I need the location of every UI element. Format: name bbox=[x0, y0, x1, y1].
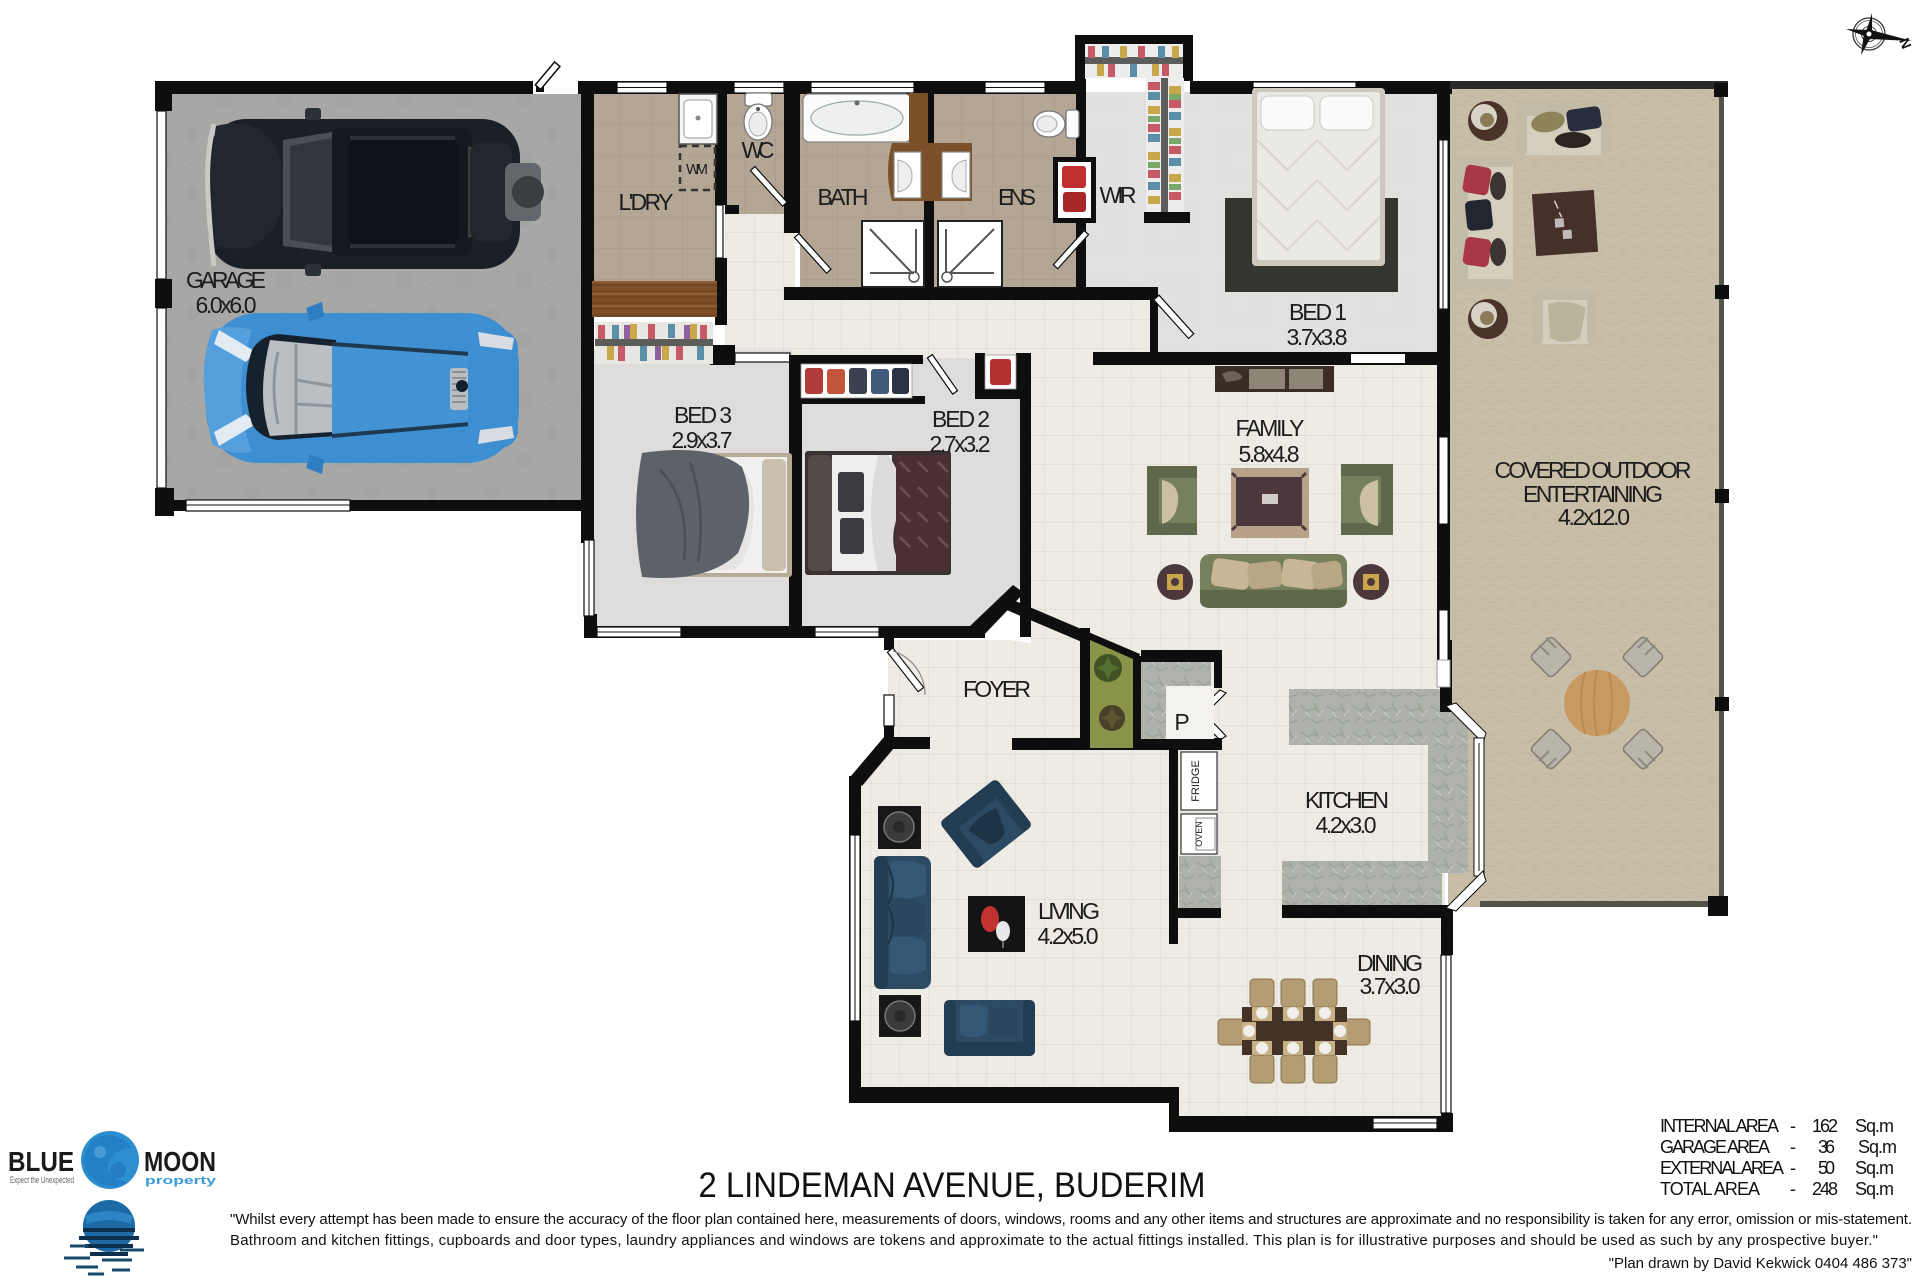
svg-text:Sq.m: Sq.m bbox=[1855, 1158, 1894, 1178]
svg-text:4.2x12.0: 4.2x12.0 bbox=[1558, 504, 1630, 530]
svg-text:36: 36 bbox=[1818, 1137, 1835, 1157]
svg-text:EXTERNAL AREA: EXTERNAL AREA bbox=[1660, 1158, 1784, 1178]
svg-text:MOON: MOON bbox=[144, 1146, 216, 1177]
svg-text:TOTAL AREA: TOTAL AREA bbox=[1660, 1179, 1760, 1199]
svg-text:-: - bbox=[1790, 1179, 1796, 1199]
svg-text:Bathroom and kitchen fittings,: Bathroom and kitchen fittings, cupboards… bbox=[230, 1232, 1878, 1249]
svg-text:BATH: BATH bbox=[818, 184, 869, 210]
svg-text:INTERNAL AREA: INTERNAL AREA bbox=[1660, 1116, 1779, 1136]
svg-text:3.7x3.8: 3.7x3.8 bbox=[1287, 324, 1348, 350]
svg-text:-: - bbox=[1790, 1116, 1796, 1136]
svg-text:2.7x3.2: 2.7x3.2 bbox=[930, 431, 991, 457]
svg-text:LIVING: LIVING bbox=[1038, 898, 1100, 924]
svg-text:BED 1: BED 1 bbox=[1289, 299, 1347, 325]
svg-text:6.0x6.0: 6.0x6.0 bbox=[196, 292, 257, 318]
svg-text:KITCHEN: KITCHEN bbox=[1305, 787, 1389, 813]
svg-text:WM: WM bbox=[686, 161, 708, 178]
svg-text:Expect the Unexpected: Expect the Unexpected bbox=[10, 1175, 74, 1185]
svg-text:2 LINDEMAN AVENUE, BUDERIM: 2 LINDEMAN AVENUE, BUDERIM bbox=[699, 1166, 1206, 1205]
svg-text:4.2x3.0: 4.2x3.0 bbox=[1316, 812, 1377, 838]
svg-text:50: 50 bbox=[1818, 1158, 1835, 1178]
svg-text:248: 248 bbox=[1812, 1179, 1838, 1199]
svg-text:-: - bbox=[1790, 1137, 1796, 1157]
svg-text:"Whilst every attempt has been: "Whilst every attempt has been made to e… bbox=[230, 1211, 1912, 1228]
svg-text:Sq.m: Sq.m bbox=[1858, 1137, 1897, 1157]
svg-text:P: P bbox=[1174, 709, 1189, 735]
svg-text:5.8x4.8: 5.8x4.8 bbox=[1239, 441, 1300, 467]
svg-text:WC: WC bbox=[742, 137, 775, 163]
svg-text:BED 2: BED 2 bbox=[932, 406, 990, 432]
svg-text:2.9x3.7: 2.9x3.7 bbox=[672, 427, 733, 453]
svg-text:Sq.m: Sq.m bbox=[1855, 1116, 1894, 1136]
svg-text:162: 162 bbox=[1812, 1116, 1838, 1136]
svg-text:"Plan drawn by David Kekwick 0: "Plan drawn by David Kekwick 0404 486 37… bbox=[1609, 1255, 1912, 1272]
svg-text:FAMILY: FAMILY bbox=[1236, 415, 1305, 441]
svg-text:GARAGE AREA: GARAGE AREA bbox=[1660, 1137, 1770, 1157]
svg-text:L'DRY: L'DRY bbox=[619, 189, 674, 215]
svg-text:4.2x5.0: 4.2x5.0 bbox=[1038, 923, 1099, 949]
svg-text:property: property bbox=[145, 1175, 217, 1187]
svg-text:-: - bbox=[1790, 1158, 1796, 1178]
svg-text:BLUE: BLUE bbox=[8, 1146, 74, 1177]
svg-text:BED 3: BED 3 bbox=[674, 402, 732, 428]
svg-text:3.7x3.0: 3.7x3.0 bbox=[1360, 973, 1421, 999]
svg-text:FOYER: FOYER bbox=[963, 676, 1031, 702]
svg-text:Sq.m: Sq.m bbox=[1855, 1179, 1894, 1199]
svg-text:WIR: WIR bbox=[1100, 182, 1137, 208]
svg-text:ENS: ENS bbox=[998, 184, 1036, 210]
svg-text:GARAGE: GARAGE bbox=[186, 267, 266, 293]
svg-text:COVERED OUTDOOR: COVERED OUTDOOR bbox=[1495, 457, 1692, 483]
svg-text:FRIDGE: FRIDGE bbox=[1190, 760, 1202, 802]
svg-text:OVEN: OVEN bbox=[1194, 821, 1204, 847]
